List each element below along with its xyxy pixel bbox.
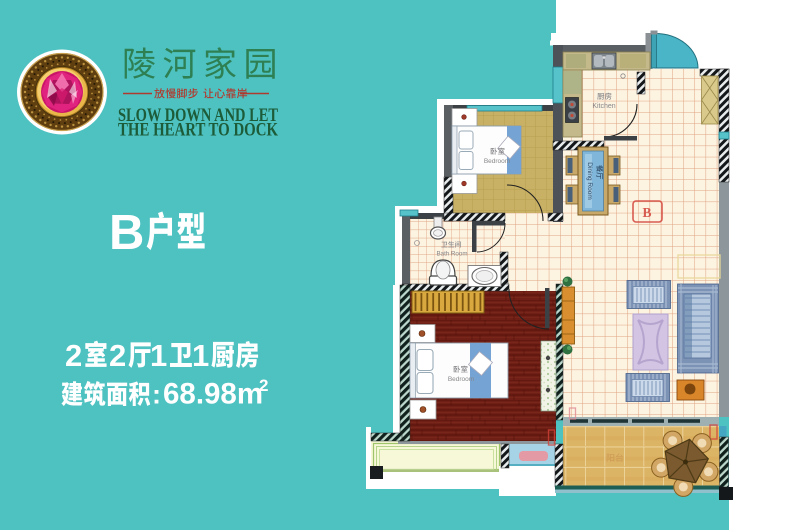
svg-text:2: 2 bbox=[65, 338, 82, 373]
svg-text:THE HEART TO DOCK: THE HEART TO DOCK bbox=[118, 120, 278, 141]
svg-text:1: 1 bbox=[150, 338, 167, 373]
svg-text:2: 2 bbox=[109, 338, 126, 373]
svg-text:Kitchen: Kitchen bbox=[592, 103, 615, 110]
svg-text:Bedroom: Bedroom bbox=[484, 158, 510, 165]
svg-text:68.98m: 68.98m bbox=[163, 378, 263, 411]
svg-text:Bedroom: Bedroom bbox=[448, 376, 474, 383]
svg-text:1: 1 bbox=[192, 338, 209, 373]
svg-text:Dining Room: Dining Room bbox=[586, 162, 593, 200]
svg-text:B: B bbox=[109, 206, 144, 260]
svg-text:Bath Room: Bath Room bbox=[437, 251, 468, 258]
svg-text:B: B bbox=[642, 205, 651, 220]
svg-text::: : bbox=[152, 380, 161, 410]
svg-text:2: 2 bbox=[259, 376, 268, 395]
